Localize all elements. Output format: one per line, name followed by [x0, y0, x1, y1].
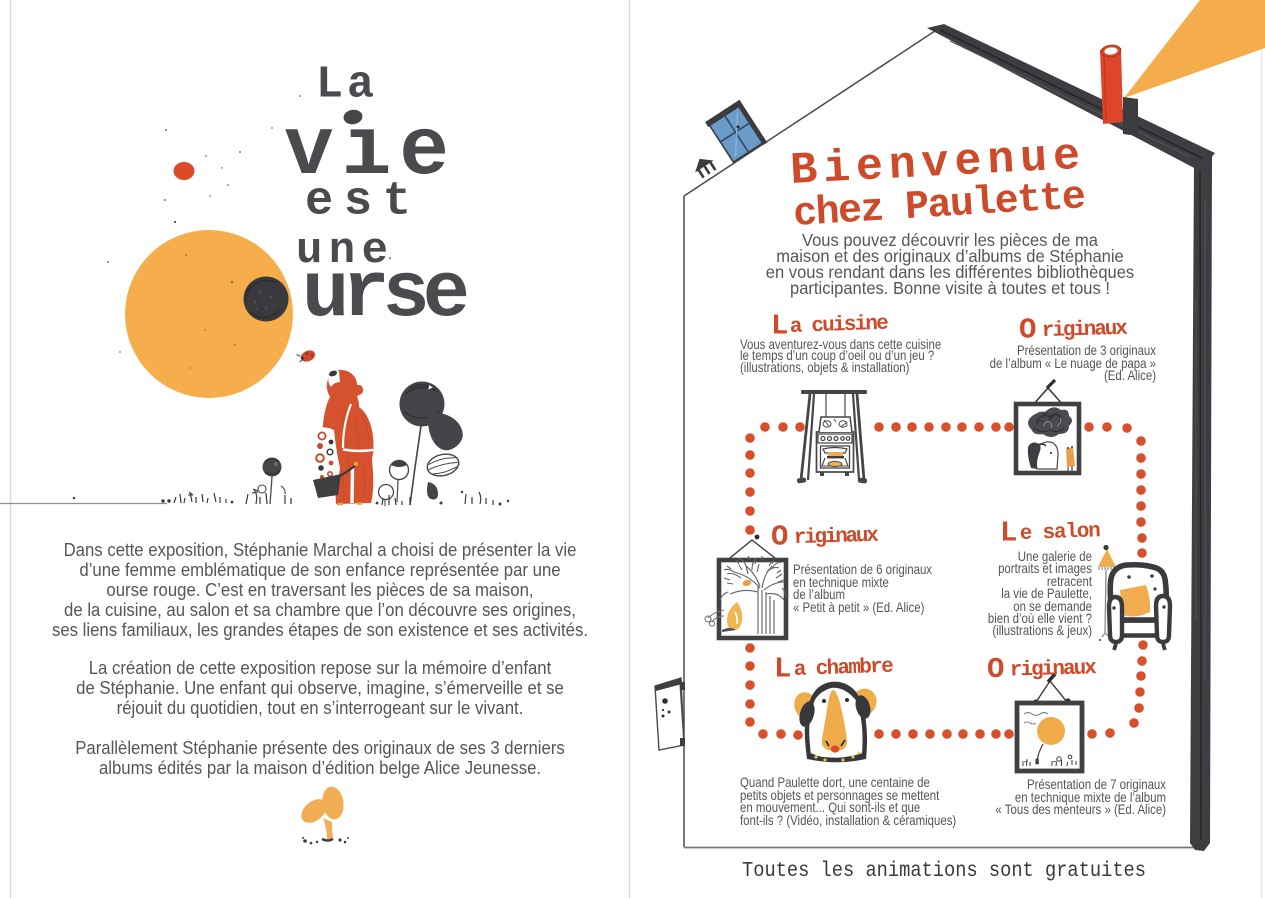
svg-text:riginaux: riginaux [1042, 318, 1129, 343]
svg-text:a chambre: a chambre [793, 656, 894, 682]
svg-text:Toutes les animations sont gra: Toutes les animations sont gratuites [742, 860, 1146, 883]
svg-text:a cuisine: a cuisine [789, 313, 889, 339]
svg-text:L: L [1000, 517, 1017, 550]
svg-text:urse: urse [302, 249, 470, 339]
svg-text:O: O [1019, 314, 1036, 347]
svg-text:O: O [771, 521, 788, 554]
svg-text:riginaux: riginaux [1010, 657, 1098, 682]
svg-text:riginaux: riginaux [794, 525, 880, 550]
svg-text:L: L [774, 653, 791, 686]
svg-text:est: est [305, 176, 411, 229]
svg-text:e salon: e salon [1019, 520, 1101, 546]
svg-text:O: O [987, 653, 1004, 686]
